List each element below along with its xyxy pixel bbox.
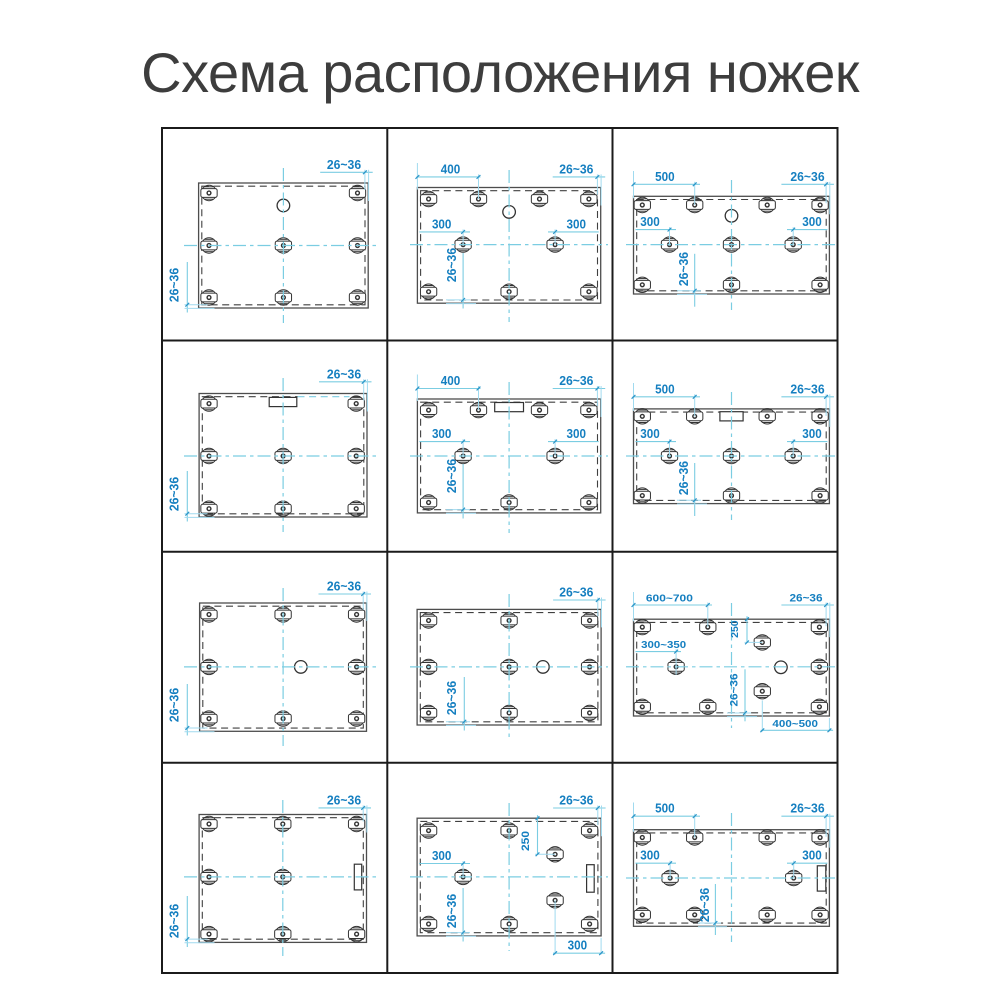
svg-text:300: 300 [567,427,587,441]
svg-text:300: 300 [432,427,452,441]
svg-text:Схема расположения ножек: Схема расположения ножек [141,41,860,104]
svg-text:26~36: 26~36 [168,688,182,722]
svg-text:250: 250 [730,620,741,638]
svg-text:300: 300 [640,427,660,441]
svg-text:300: 300 [432,217,452,231]
svg-text:300: 300 [640,849,660,863]
svg-text:300: 300 [802,215,822,229]
svg-text:26~36: 26~36 [559,794,593,808]
svg-text:500: 500 [655,802,675,816]
svg-text:26~36: 26~36 [559,586,593,600]
svg-text:26~36: 26~36 [168,904,182,938]
svg-text:300: 300 [568,939,588,953]
svg-text:26~36: 26~36 [327,158,361,172]
svg-text:600~700: 600~700 [646,594,694,605]
svg-text:26~36: 26~36 [445,894,459,928]
svg-text:26~36: 26~36 [445,248,459,282]
svg-text:26~36: 26~36 [677,461,691,495]
svg-text:26~36: 26~36 [445,459,459,493]
svg-text:26~36: 26~36 [729,674,741,707]
svg-text:400: 400 [441,162,461,176]
svg-text:26~36: 26~36 [327,367,361,381]
svg-text:300: 300 [432,849,452,863]
svg-text:26~36: 26~36 [677,252,691,286]
svg-text:26~36: 26~36 [559,162,593,176]
svg-text:300: 300 [802,427,822,441]
svg-text:26~36: 26~36 [445,681,459,715]
svg-text:300~350: 300~350 [641,640,686,651]
svg-text:26~36: 26~36 [698,888,712,922]
svg-text:500: 500 [655,170,675,184]
svg-text:26~36: 26~36 [168,477,182,511]
svg-text:300: 300 [802,849,822,863]
svg-text:300: 300 [640,215,660,229]
svg-text:500: 500 [655,382,675,396]
svg-text:26~36: 26~36 [790,382,824,396]
svg-text:26~36: 26~36 [790,593,823,605]
svg-text:400: 400 [441,374,461,388]
svg-text:26~36: 26~36 [327,793,361,807]
svg-text:400~500: 400~500 [772,719,818,730]
svg-text:26~36: 26~36 [790,170,824,184]
svg-text:26~36: 26~36 [790,802,824,816]
svg-text:26~36: 26~36 [559,374,593,388]
svg-text:26~36: 26~36 [168,268,182,302]
svg-text:250: 250 [520,831,532,851]
svg-text:26~36: 26~36 [327,580,361,594]
svg-text:300: 300 [567,217,587,231]
